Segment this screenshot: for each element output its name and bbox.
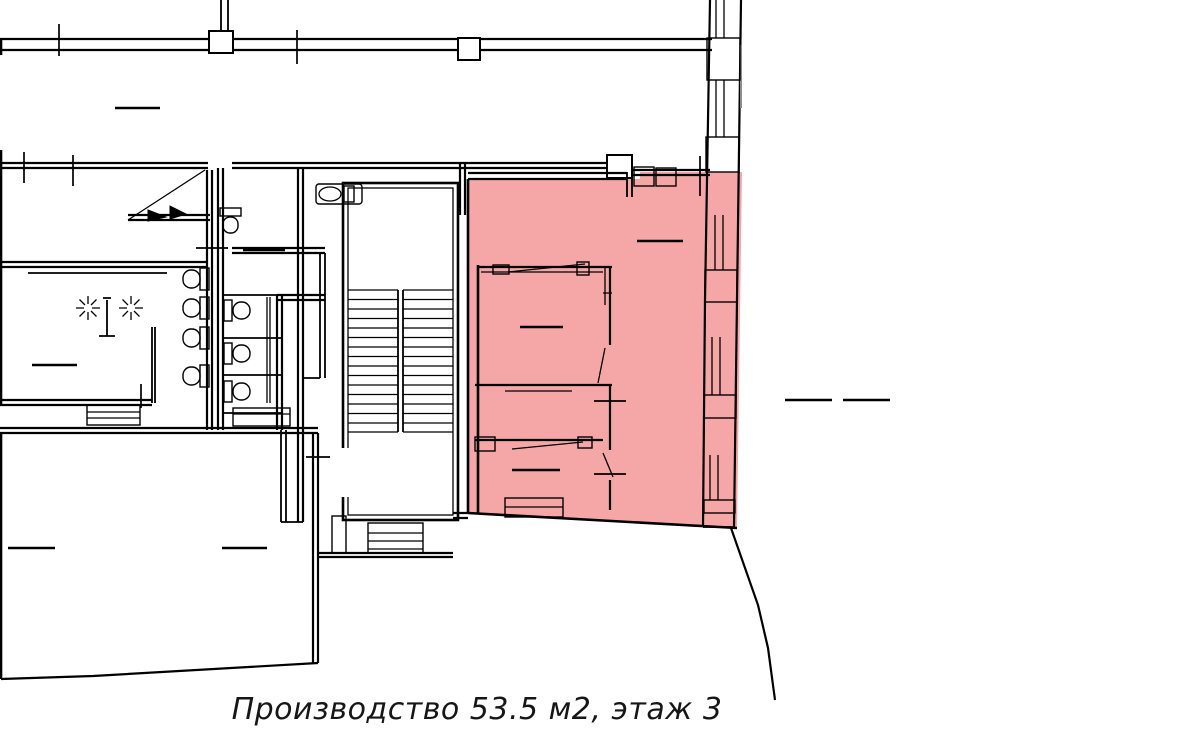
- column-block: [607, 155, 632, 178]
- landing-fixture: [316, 184, 362, 204]
- toilet-icon: [183, 297, 209, 319]
- toilet-row-left: [183, 268, 209, 387]
- toilet-icon: [183, 327, 209, 349]
- door-swing-line: [128, 170, 205, 220]
- pedestal-fixture: [99, 298, 115, 336]
- toilet-icon: [183, 365, 209, 387]
- side-chamber: [332, 516, 346, 553]
- caption-text: Производство 53.5 м2, этаж 3: [232, 692, 723, 727]
- wall-pier: [706, 137, 739, 172]
- wall-pier: [707, 38, 740, 80]
- floorplan-page: Производство 53.5 м2, этаж 3: [0, 0, 1200, 745]
- plan-caption: Производство 53.5 м2, этаж 3: [127, 692, 827, 727]
- vestibule-door: [128, 170, 210, 221]
- staircase: [313, 183, 468, 663]
- southeast-diagonal-wall: [731, 528, 775, 700]
- column-block: [458, 38, 480, 60]
- stair-treads-right: [403, 290, 453, 432]
- stair-treads-left: [348, 290, 398, 432]
- door-leaf-icon: [170, 206, 186, 219]
- floorplan-drawing: [0, 0, 1200, 745]
- south-facade-edge: [1, 663, 318, 679]
- toilet-icon: [183, 268, 209, 290]
- threshold-steps: [87, 405, 140, 425]
- toilet-icon: [224, 381, 250, 402]
- stair-door-opening: [341, 448, 350, 497]
- toilet-stalls: [224, 300, 250, 402]
- toilet-icon: [224, 300, 250, 321]
- toilet-icon: [224, 343, 250, 364]
- sink-icons: [76, 296, 143, 336]
- highlighted-area: [468, 172, 742, 528]
- column-block: [209, 31, 233, 53]
- wc-block-walls: [0, 168, 325, 433]
- stair-stringer: [398, 290, 403, 432]
